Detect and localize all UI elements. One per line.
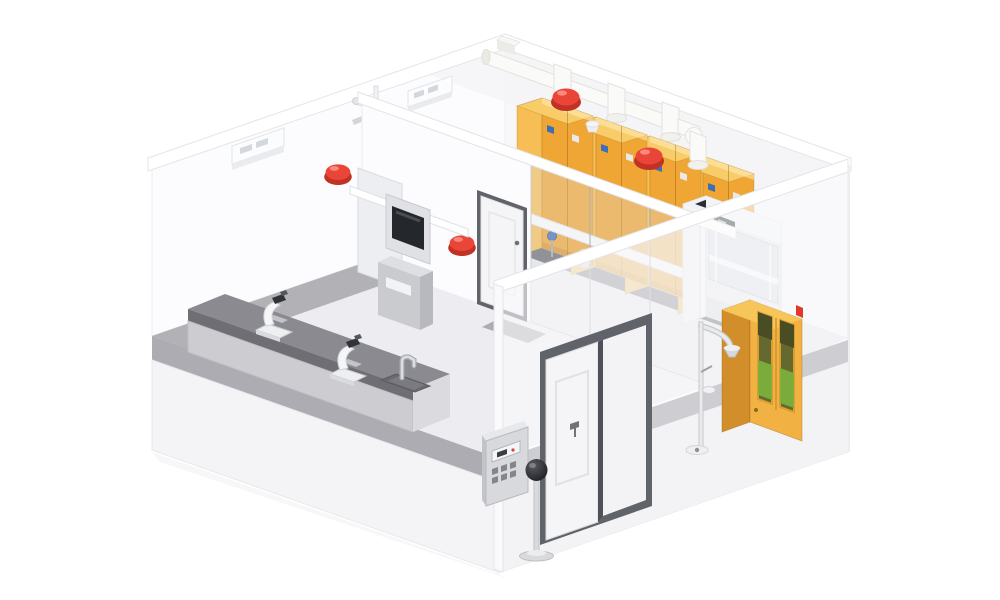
door-handle <box>515 241 520 246</box>
black-globe-sensor <box>526 459 548 481</box>
alarm-dome-wall <box>324 164 352 185</box>
shower-pole <box>699 322 703 452</box>
door-leaf-left <box>546 342 598 540</box>
entrance-door <box>540 313 652 545</box>
lab-room-scene <box>0 0 1000 600</box>
ppe-cabinet <box>722 300 803 441</box>
lab-3d-illustration <box>0 0 1000 600</box>
alarm-dome-cabinet-1 <box>551 89 581 112</box>
door-leaf-right <box>603 325 646 516</box>
ppe-lock <box>754 408 758 412</box>
panel-indicator <box>511 448 514 451</box>
alarm-dome-partition <box>448 235 476 256</box>
stand-pole <box>534 480 539 554</box>
front-corner-post <box>494 284 503 572</box>
alarm-dome-cabinet-3 <box>634 148 664 171</box>
eyewash-bowl <box>703 387 716 394</box>
control-panel <box>482 421 528 506</box>
